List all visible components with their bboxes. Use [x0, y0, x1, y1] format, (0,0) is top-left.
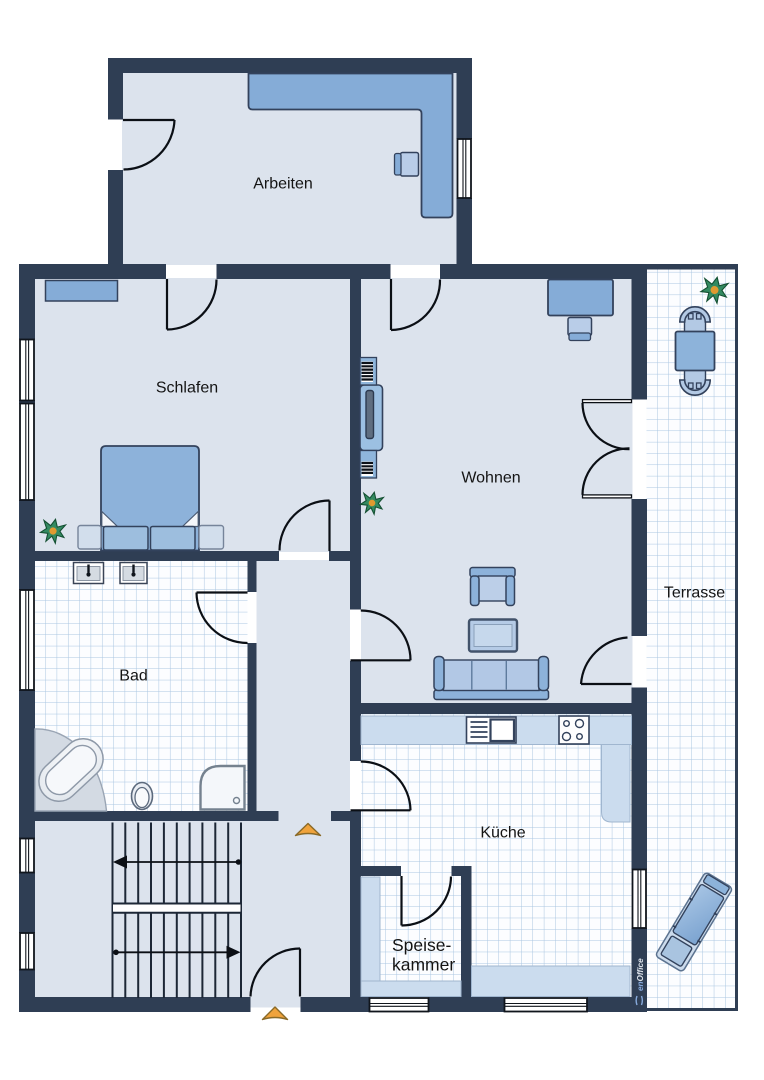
svg-text:Küche: Küche: [480, 825, 525, 842]
svg-text:Arbeiten: Arbeiten: [253, 176, 313, 193]
svg-text:Terrasse: Terrasse: [664, 585, 725, 602]
svg-text:enOffice: enOffice: [636, 958, 645, 991]
svg-text:Wohnen: Wohnen: [461, 470, 520, 487]
svg-text:kammer: kammer: [392, 955, 455, 975]
svg-text:Speise-: Speise-: [392, 935, 452, 955]
svg-text:Bad: Bad: [119, 668, 147, 685]
svg-text:Schlafen: Schlafen: [156, 380, 218, 397]
